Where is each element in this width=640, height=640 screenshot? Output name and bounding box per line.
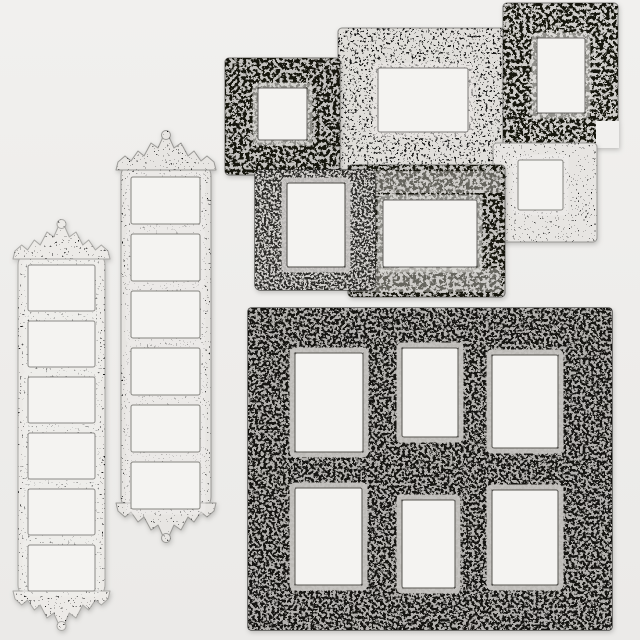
photo-opening xyxy=(28,265,95,311)
photo-opening xyxy=(295,353,363,452)
photo-opening xyxy=(28,489,95,535)
photo-opening xyxy=(402,500,455,588)
photo-opening xyxy=(492,490,558,585)
photo-opening xyxy=(131,348,200,395)
photo-opening xyxy=(383,200,477,267)
frame-cluster-silver-large xyxy=(338,28,505,175)
frame-cluster-square-top-left xyxy=(225,58,340,175)
photo-opening xyxy=(28,377,95,423)
photo-opening xyxy=(131,234,200,281)
photo-opening xyxy=(287,183,345,267)
photo-opening xyxy=(131,405,200,452)
photo-opening xyxy=(131,291,200,338)
frame-tall-left xyxy=(13,220,110,631)
frame-cluster-dark-portrait xyxy=(255,170,375,290)
photo-opening xyxy=(28,433,95,479)
photo-opening xyxy=(492,355,558,448)
photo-opening xyxy=(131,177,200,224)
photo-opening xyxy=(295,488,362,585)
frame-collage-six-black xyxy=(248,308,612,630)
photo-opening xyxy=(537,38,585,113)
picture-frames-render-canvas xyxy=(0,0,640,640)
photo-opening xyxy=(402,348,458,437)
frame-cutout xyxy=(596,121,619,148)
frame-cluster-mid-right xyxy=(493,143,597,242)
render-stage xyxy=(0,0,640,640)
frame-tall-middle xyxy=(116,131,216,543)
frame-cluster-top-right xyxy=(503,3,619,148)
photo-opening xyxy=(258,88,307,140)
photo-opening xyxy=(131,462,200,509)
photo-opening xyxy=(28,545,95,591)
photo-opening xyxy=(378,68,468,132)
photo-opening xyxy=(28,321,95,367)
photo-opening xyxy=(518,160,563,210)
